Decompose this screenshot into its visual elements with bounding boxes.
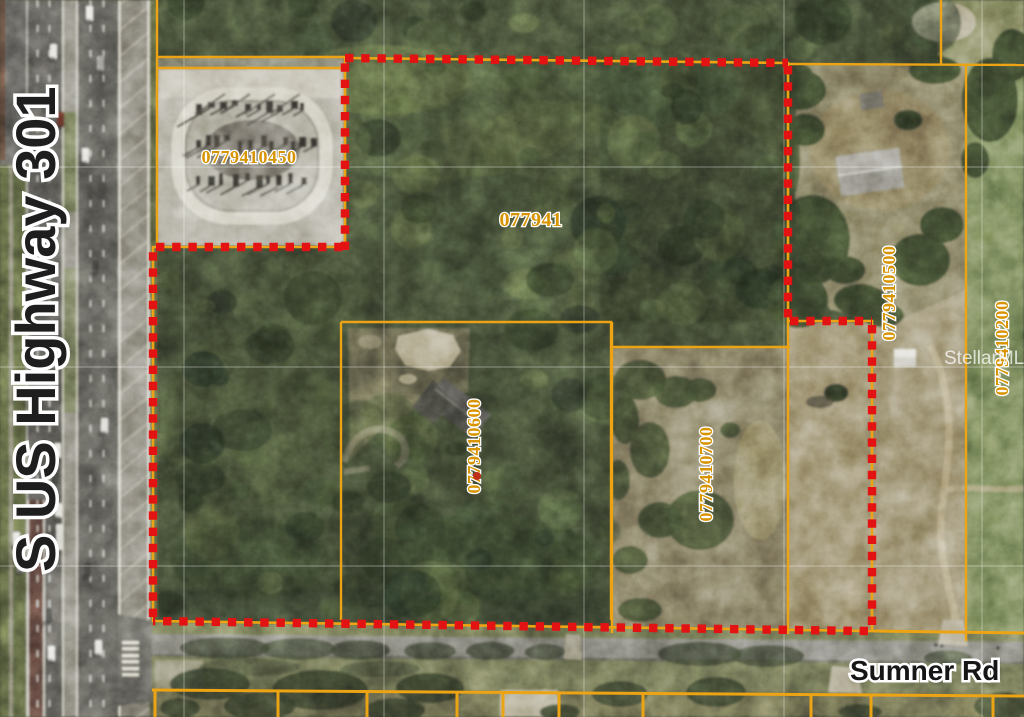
svg-text:0779410500: 0779410500 (879, 246, 899, 341)
svg-text:077941: 077941 (500, 209, 563, 231)
svg-text:0779410600: 0779410600 (464, 399, 484, 494)
svg-text:0779410700: 0779410700 (696, 427, 716, 522)
svg-text:0779410450: 0779410450 (202, 147, 297, 167)
svg-text:S US Highway 301: S US Highway 301 (4, 86, 67, 572)
svg-text:Sumner Rd: Sumner Rd (850, 655, 999, 686)
svg-text:StellarMLS: StellarMLS (944, 348, 1024, 369)
